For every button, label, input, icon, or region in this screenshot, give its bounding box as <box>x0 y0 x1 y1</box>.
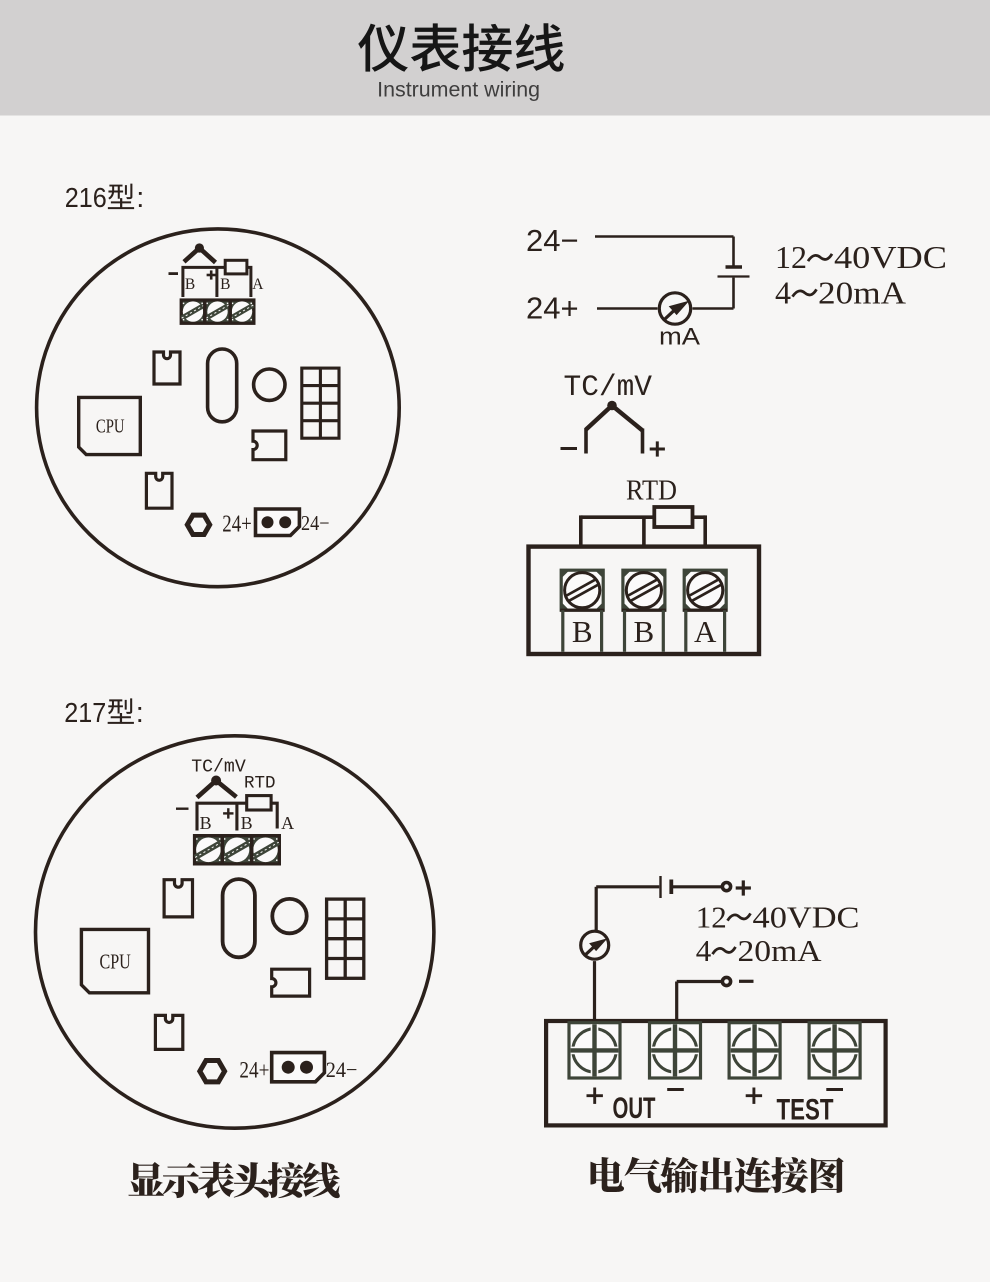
svg-text:RTD: RTD <box>626 475 677 507</box>
svg-text:RTD: RTD <box>244 774 276 794</box>
svg-text:B: B <box>185 276 195 293</box>
svg-text:20mA: 20mA <box>738 933 823 968</box>
svg-text:A: A <box>694 614 717 649</box>
svg-text:A: A <box>252 276 264 293</box>
svg-text:TC/mV: TC/mV <box>191 758 246 778</box>
svg-text:B: B <box>634 614 655 649</box>
svg-text:B: B <box>200 813 212 833</box>
svg-text:B: B <box>241 813 253 833</box>
svg-text::: : <box>136 697 144 729</box>
svg-text::: : <box>136 182 144 214</box>
svg-text:40VDC: 40VDC <box>753 900 860 935</box>
svg-text:217: 217 <box>64 697 106 728</box>
svg-text:CPU: CPU <box>100 950 132 974</box>
svg-text:B: B <box>220 276 230 293</box>
svg-text:216: 216 <box>65 182 107 213</box>
svg-text:20mA: 20mA <box>818 275 906 311</box>
svg-text:12: 12 <box>775 239 807 275</box>
svg-text:12: 12 <box>696 900 727 935</box>
svg-text:24−: 24− <box>526 223 579 258</box>
svg-text:24+: 24+ <box>222 512 252 538</box>
svg-text:Instrument wiring: Instrument wiring <box>377 77 540 101</box>
svg-text:TEST: TEST <box>777 1094 834 1127</box>
svg-text:OUT: OUT <box>613 1092 656 1125</box>
svg-text:24+: 24+ <box>239 1057 269 1083</box>
svg-text:24−: 24− <box>326 1057 358 1082</box>
svg-text:24−: 24− <box>301 511 330 535</box>
svg-text:A: A <box>281 813 294 833</box>
svg-text:CPU: CPU <box>96 416 125 438</box>
svg-text:24+: 24+ <box>526 291 579 326</box>
svg-text:4: 4 <box>696 933 712 968</box>
svg-text:4: 4 <box>775 275 791 311</box>
svg-text:40VDC: 40VDC <box>834 239 947 275</box>
svg-text:B: B <box>572 614 593 649</box>
svg-text:mA: mA <box>659 324 701 351</box>
svg-text:TC/mV: TC/mV <box>564 370 653 404</box>
